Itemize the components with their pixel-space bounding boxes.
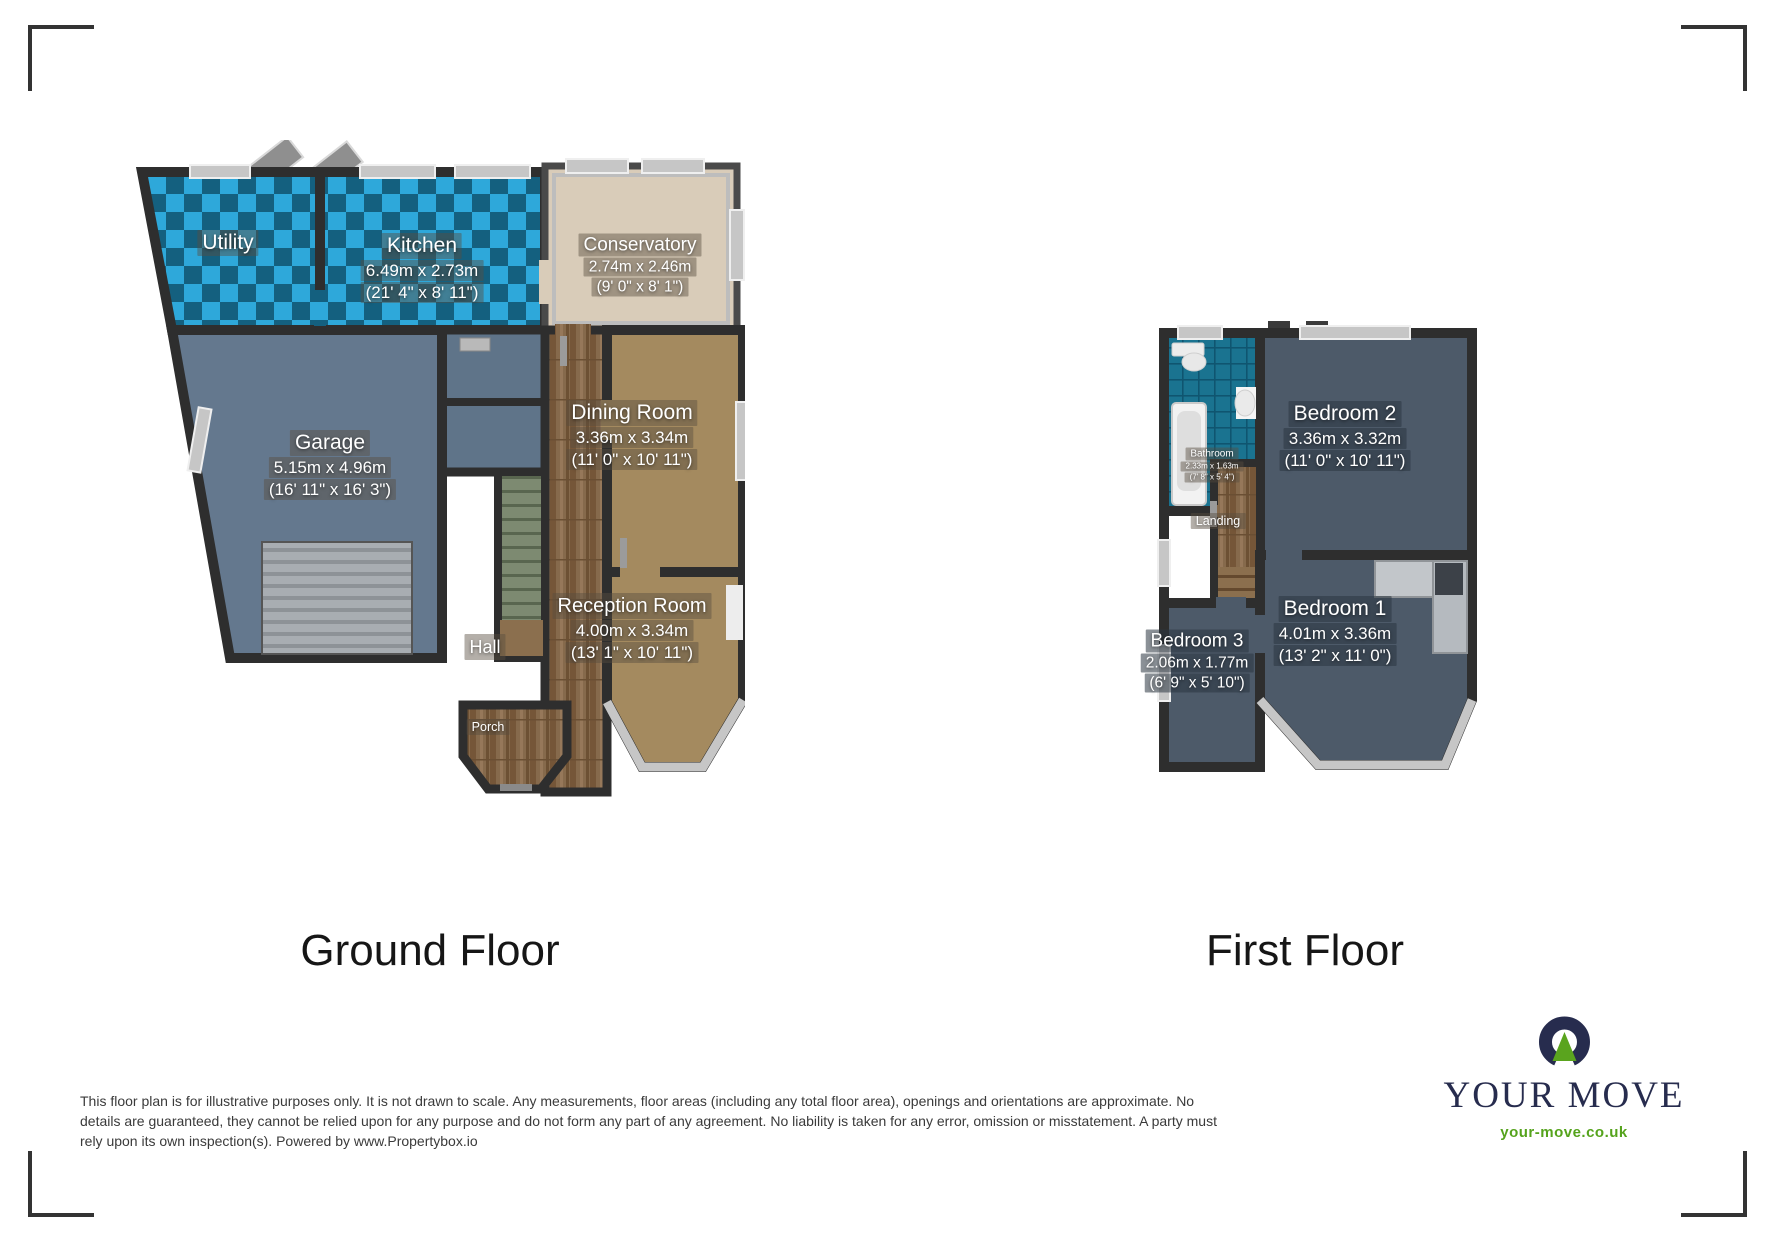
conservatory-window <box>566 159 628 173</box>
conservatory-window <box>642 159 704 173</box>
door-leaf <box>560 336 567 366</box>
utility-room <box>142 172 320 330</box>
brand-name: YOUR MOVE <box>1443 1074 1684 1117</box>
wardrobe-dark-panel <box>1435 563 1463 595</box>
conservatory-side-window <box>730 210 744 280</box>
door-leaf <box>1210 501 1217 527</box>
bedroom3-doorway <box>1216 597 1246 609</box>
brand-url: your-move.co.uk <box>1500 1124 1628 1141</box>
first-floor-plan <box>1150 315 1480 775</box>
kitchen-hall-doorway <box>555 324 591 336</box>
bedroom2-room <box>1260 333 1472 555</box>
disclaimer-line-1: This floor plan is for illustrative purp… <box>80 1091 1217 1111</box>
bedroom1-doorway <box>1254 615 1266 653</box>
kitchen-conservatory-doorway <box>539 260 551 304</box>
bedroom3-room <box>1164 603 1260 767</box>
utility-window <box>190 165 250 178</box>
disclaimer-text: This floor plan is for illustrative purp… <box>80 1091 1217 1151</box>
floorplan-page: { "floors": [ { "label": "Ground Floor",… <box>0 0 1771 1239</box>
ground-floor-plan <box>130 140 745 800</box>
dining-room <box>607 330 743 572</box>
bathtub-basin <box>1177 411 1201 491</box>
dining-window <box>736 402 745 480</box>
first-floor-title: First Floor <box>1206 926 1404 976</box>
stairwell-window <box>1158 540 1170 586</box>
your-move-logo-icon <box>1536 1016 1592 1072</box>
bedroom2-window <box>1300 326 1410 339</box>
bedroom3-window <box>1158 645 1170 701</box>
utility-kitchen-doorway <box>314 290 326 326</box>
disclaimer-line-2: details are guaranteed, they cannot be r… <box>80 1111 1217 1131</box>
kitchen-room <box>320 172 545 330</box>
porch-front-door <box>500 784 532 791</box>
stair-landing <box>500 620 543 656</box>
bathroom-doorway <box>1216 505 1246 517</box>
your-move-logo: YOUR MOVE your-move.co.uk <box>1443 1016 1684 1141</box>
conservatory-room <box>545 166 737 332</box>
wardrobe <box>1375 561 1433 597</box>
bedroom2-doorway <box>1266 549 1302 561</box>
door-leaf <box>620 538 627 568</box>
crop-mark-top-right <box>1681 25 1747 91</box>
garage-door <box>262 542 412 654</box>
toilet-bowl <box>1182 353 1206 371</box>
bathroom-window <box>1178 326 1222 339</box>
disclaimer-line-3: rely upon its own inspection(s). Powered… <box>80 1131 1217 1151</box>
hall-dining-doorway <box>601 400 613 440</box>
reception-alcove <box>726 585 743 640</box>
sink-bowl <box>1235 390 1255 416</box>
kitchen-window <box>360 165 435 178</box>
crop-mark-top-left <box>28 25 94 91</box>
ground-floor-title: Ground Floor <box>300 926 559 976</box>
porch-room <box>463 705 567 789</box>
radiator <box>460 338 490 351</box>
crop-mark-bottom-left <box>28 1151 94 1217</box>
kitchen-window <box>455 165 530 178</box>
crop-mark-bottom-right <box>1681 1151 1747 1217</box>
logo-triangle-icon <box>1552 1032 1576 1061</box>
